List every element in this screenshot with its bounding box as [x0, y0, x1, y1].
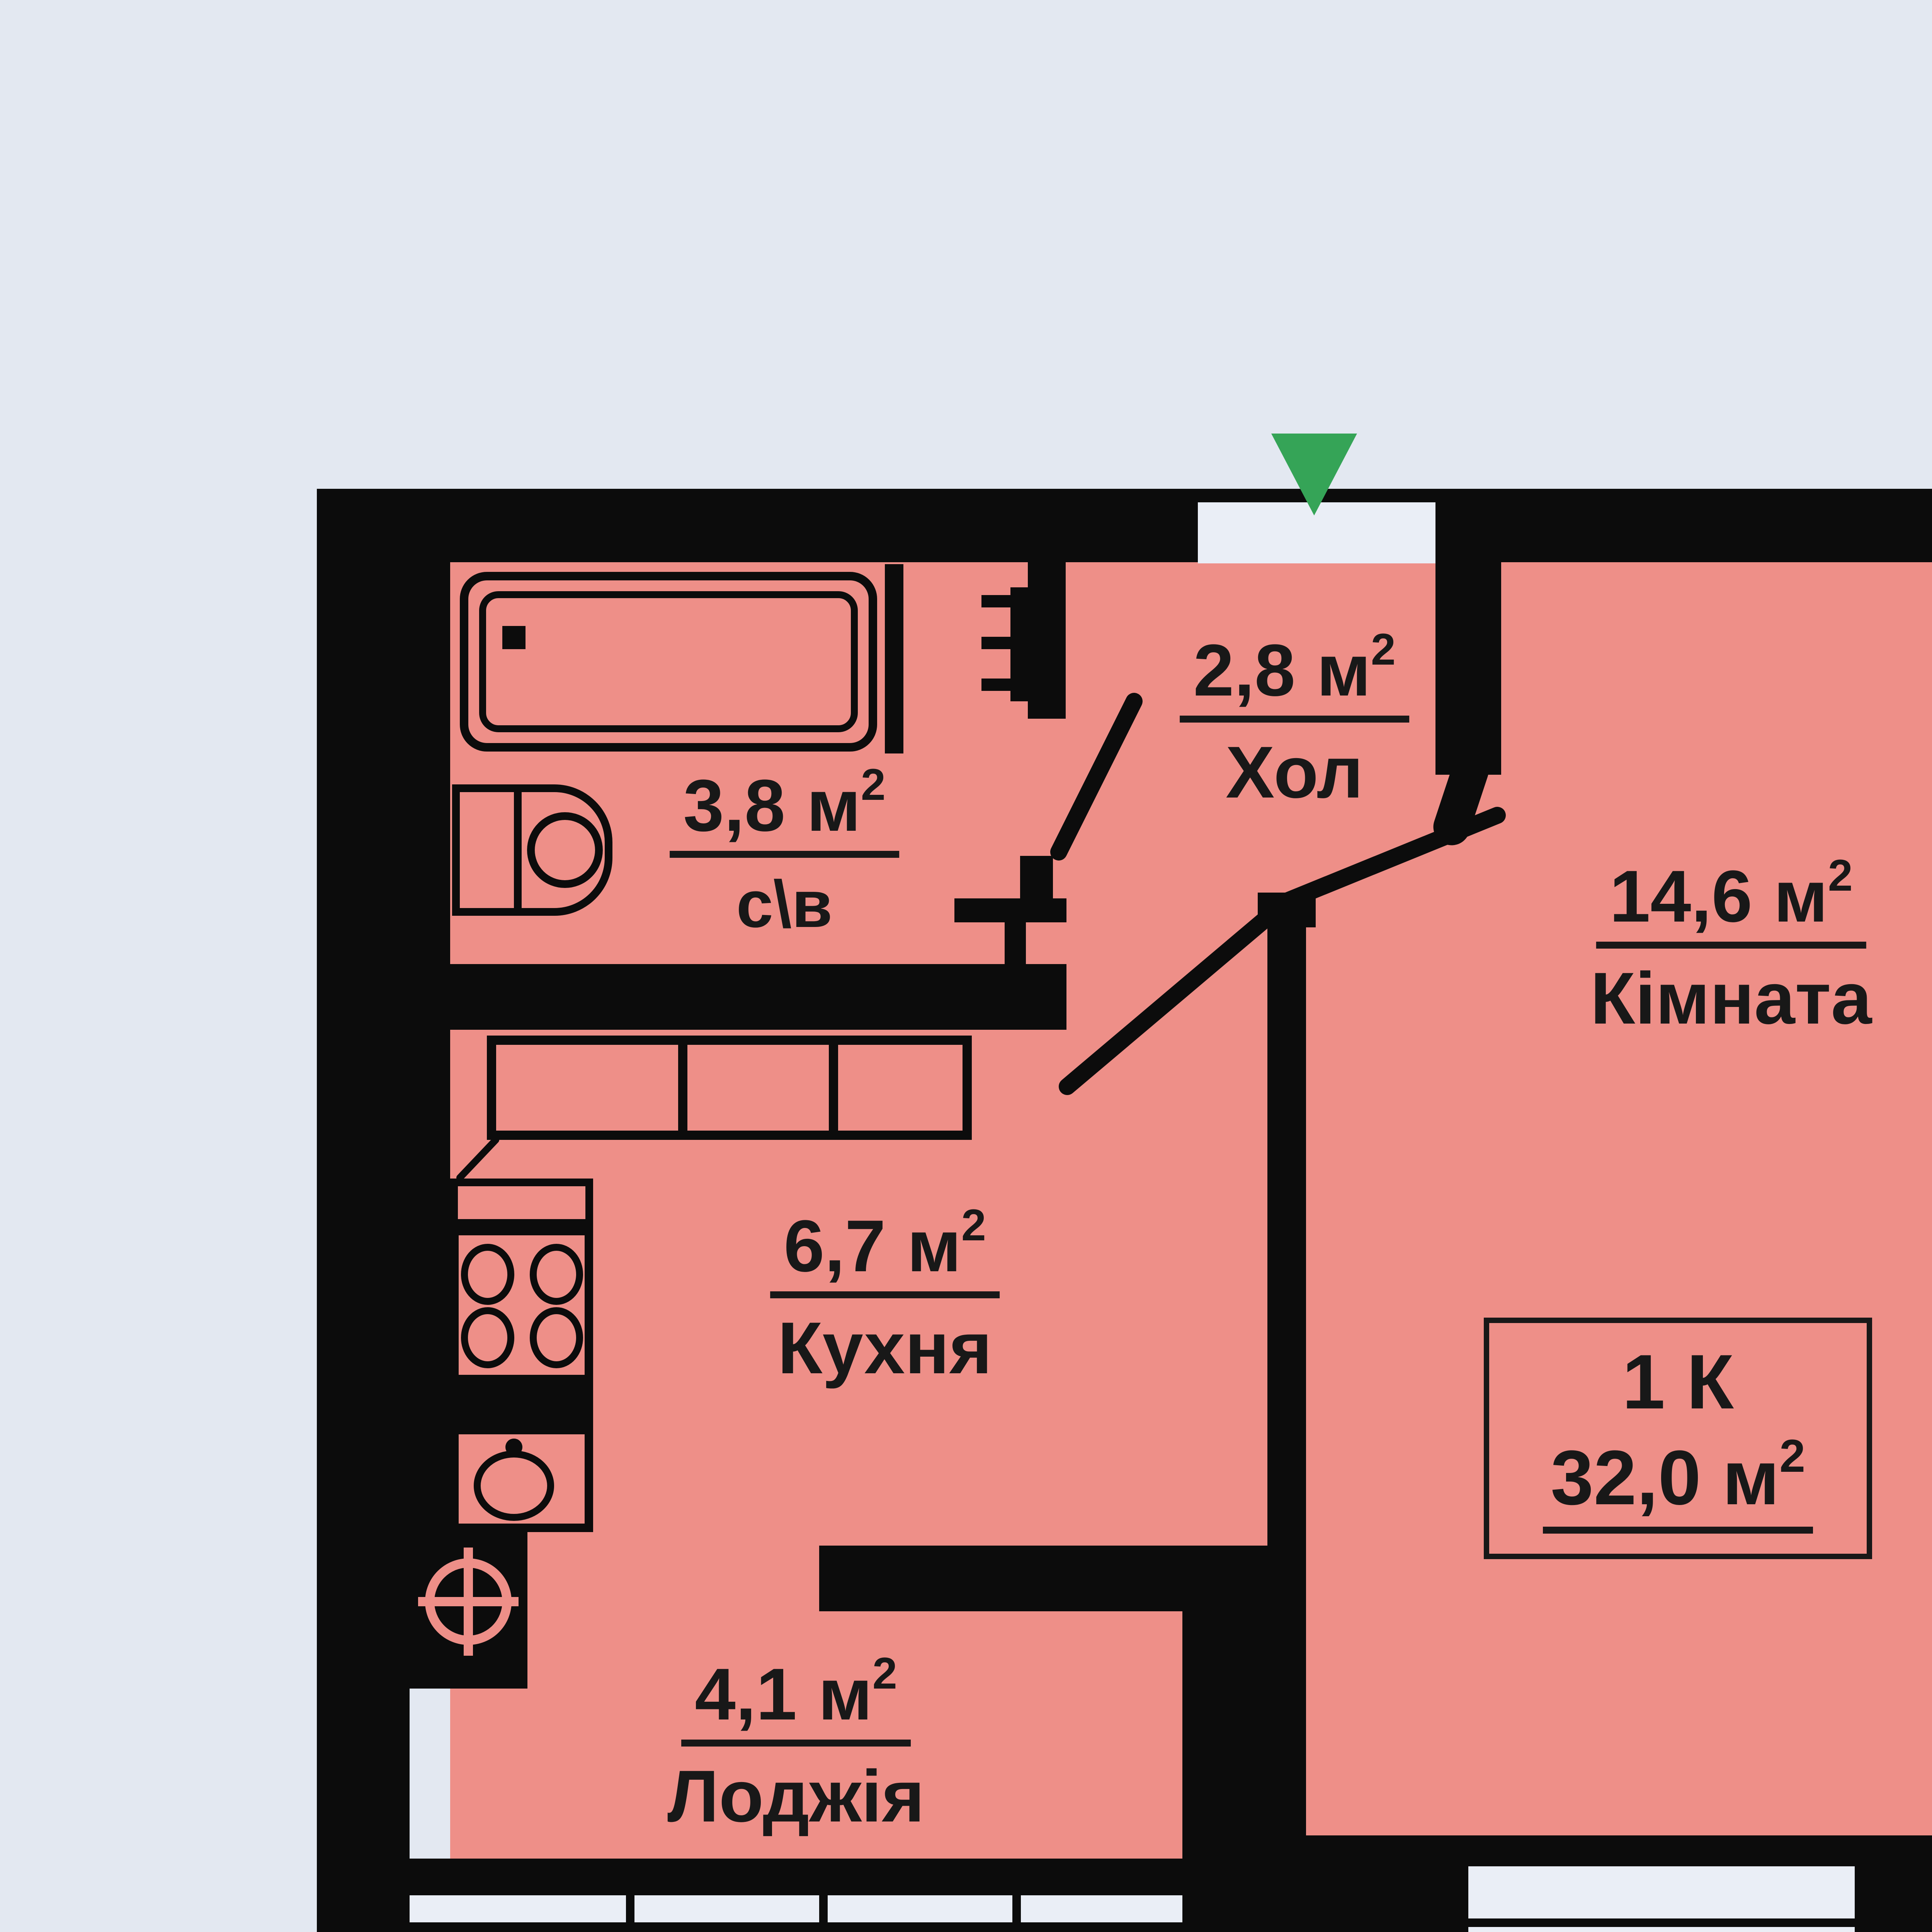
hall-name: Хол: [1180, 736, 1409, 809]
loggia-area: 4,1м2: [681, 1658, 911, 1747]
bathroom-area: 3,8м2: [670, 769, 899, 858]
loggia-name: Лоджія: [667, 1760, 925, 1833]
stove-burner: [533, 1247, 580, 1301]
floor-plan: 2,8м2 Хол 3,8м2 с\в 6,7м2 Кухня 14,6м2 К…: [0, 0, 1932, 1932]
apartment-type: 1 К: [1622, 1344, 1734, 1421]
washing-machine-symbol: [418, 1548, 519, 1656]
room-label: 14,6м2 Кімната: [1590, 860, 1872, 1035]
loggia-label: 4,1м2 Лоджія: [667, 1658, 925, 1833]
hall-label: 2,8м2 Хол: [1180, 634, 1409, 809]
door-leaf-entrance-stub: [1452, 771, 1470, 827]
kitchen-name: Кухня: [770, 1311, 1000, 1385]
door-leaf-kitchen: [1067, 916, 1269, 1087]
stove-burner: [464, 1311, 511, 1365]
kitchen-label: 6,7м2 Кухня: [770, 1209, 1000, 1385]
room-area: 14,6м2: [1596, 860, 1866, 949]
bathroom-name: с\в: [670, 871, 899, 937]
apartment-total-area: 32,0м2: [1543, 1439, 1813, 1534]
hall-area: 2,8м2: [1180, 634, 1409, 723]
kitchen-area: 6,7м2: [770, 1209, 1000, 1298]
room-name: Кімната: [1590, 962, 1872, 1035]
sink-basin: [477, 1454, 551, 1517]
door-leaf-bathroom: [1059, 701, 1134, 852]
cabinet-chamfer: [460, 1140, 496, 1178]
sink-faucet: [505, 1439, 522, 1456]
bathroom-label: 3,8м2 с\в: [670, 769, 899, 937]
stove-burner: [464, 1247, 511, 1301]
apartment-info-box: 1 К 32,0м2: [1484, 1318, 1872, 1559]
toilet-bowl: [531, 816, 599, 884]
stove-burner: [533, 1311, 580, 1365]
